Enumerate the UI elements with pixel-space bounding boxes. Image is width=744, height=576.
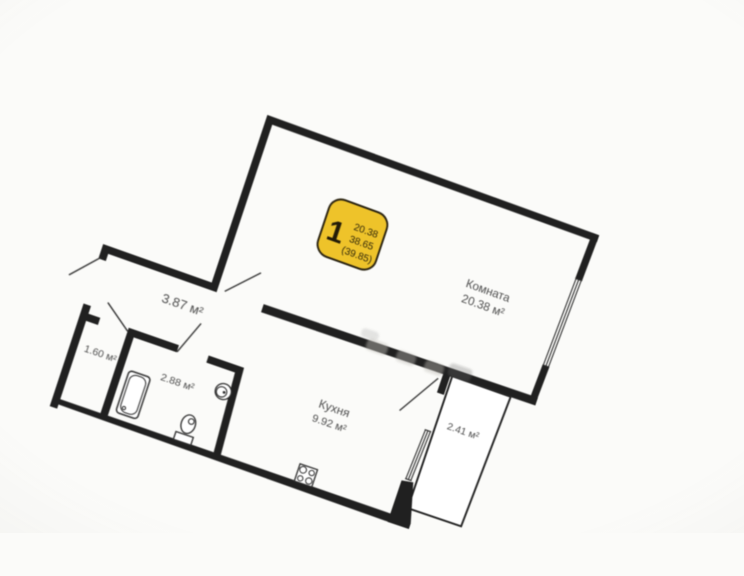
svg-text:1.60 м²: 1.60 м² — [83, 344, 119, 365]
svg-text:2.88 м²: 2.88 м² — [159, 372, 196, 394]
svg-text:3.87 м²: 3.87 м² — [160, 291, 206, 319]
